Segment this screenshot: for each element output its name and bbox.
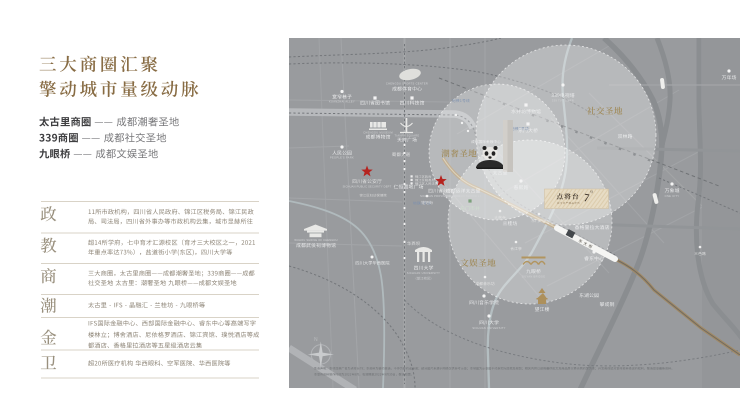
svg-text:SINO-OCEAN TAIKOO LI: SINO-OCEAN TAIKOO LI xyxy=(445,194,481,198)
svg-text:ONE CITY: ONE CITY xyxy=(665,194,680,198)
svg-text:SICHUAN PUBLIC SECURITY DEPT: SICHUAN PUBLIC SECURITY DEPT xyxy=(343,184,392,188)
svg-text:CHENGDU SPORTS CENTER: CHENGDU SPORTS CENTER xyxy=(386,82,428,86)
svg-text:KUANZHAI ALLEY: KUANZHAI ALLEY xyxy=(329,100,355,104)
svg-text:PEOPLE'S PARK: PEOPLE'S PARK xyxy=(330,156,354,160)
svg-text:339 TV TOWER: 339 TV TOWER xyxy=(552,99,574,103)
svg-text:JIUYAN BRIDGE: JIUYAN BRIDGE xyxy=(522,275,546,279)
svg-text:SICHUAN UNIVERSITY: SICHUAN UNIVERSITY xyxy=(407,271,440,275)
svg-text:N: N xyxy=(314,337,318,343)
svg-text:CHENGDU MUSEUM: CHENGDU MUSEUM xyxy=(363,130,393,134)
svg-text:SICHUAN UNIVERSITY: SICHUAN UNIVERSITY xyxy=(472,326,505,330)
svg-text:TIANFU SQUARE: TIANFU SQUARE xyxy=(395,133,420,137)
svg-text:WUHOU SHRINE OF CHENGDU: WUHOU SHRINE OF CHENGDU xyxy=(294,238,337,242)
